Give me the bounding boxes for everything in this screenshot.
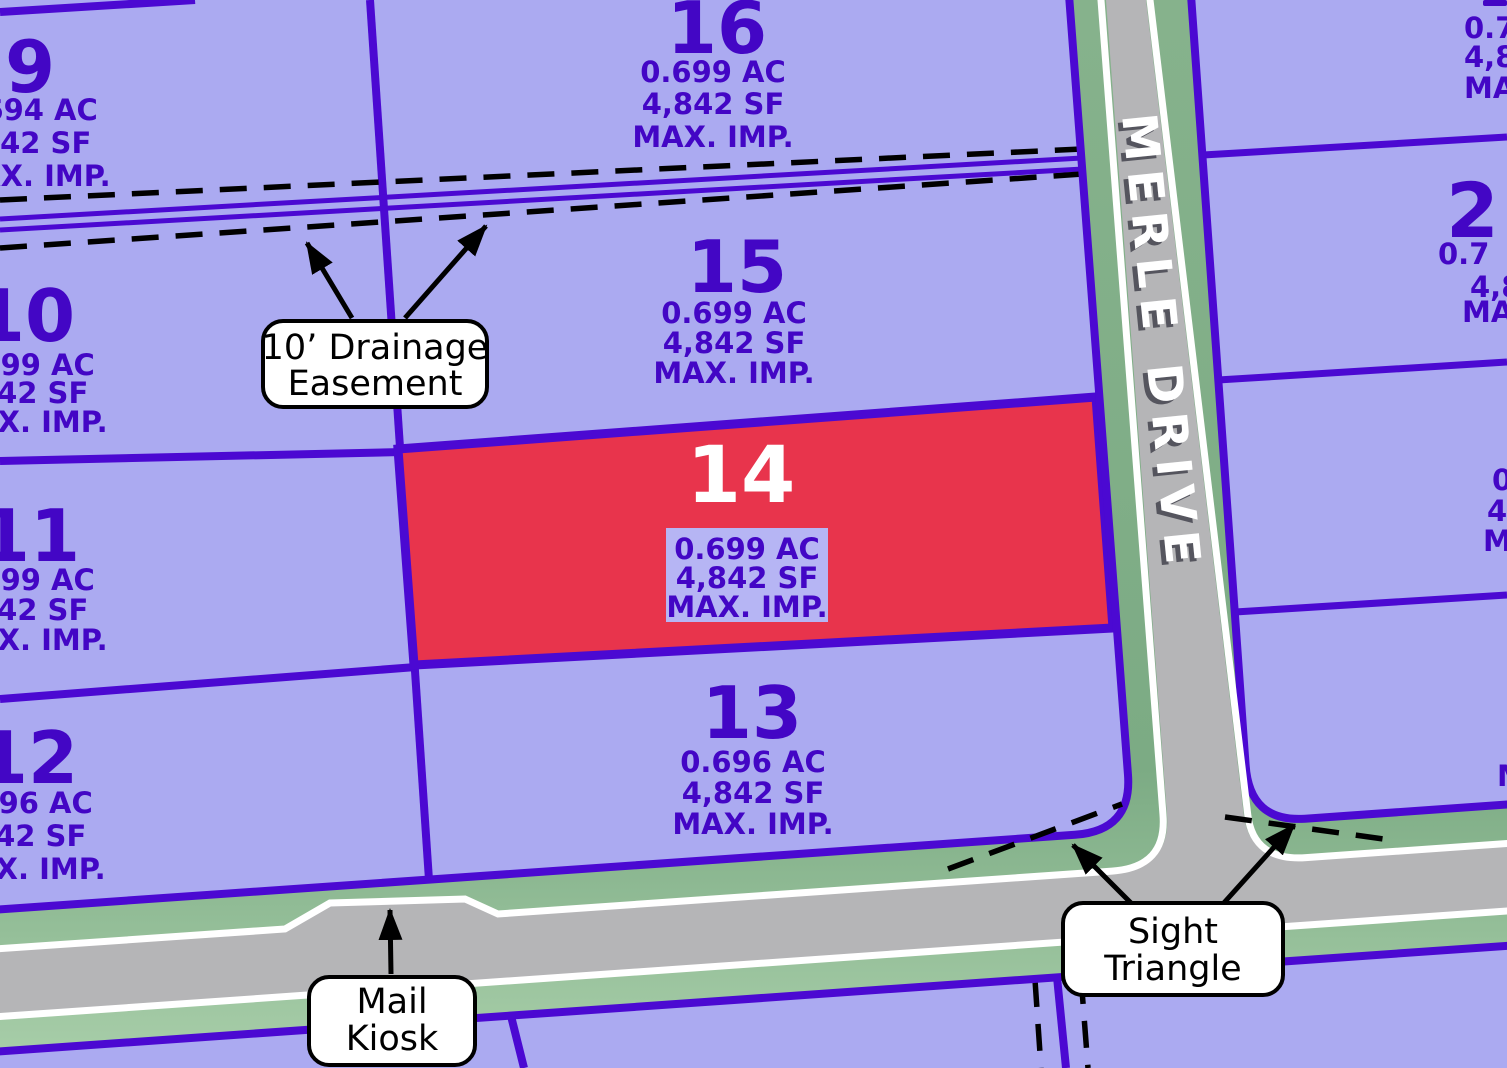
partial-lr-sqft: 4, xyxy=(1487,494,1507,528)
lot-16-sqft: 4,842 SF xyxy=(642,87,785,121)
lot-11-sqft: 4,842 SF xyxy=(0,593,88,627)
sight-triangle-callout-line2: Triangle xyxy=(1103,949,1241,989)
lot-10-number: 10 xyxy=(0,274,75,358)
lot-15-max-imp: MAX. IMP. xyxy=(653,356,814,390)
lot-14-max-imp: MAX. IMP. xyxy=(666,590,827,624)
lot-12-sqft: 4,842 SF xyxy=(0,819,86,853)
lot-13-acres: 0.696 AC xyxy=(680,745,826,779)
lot-9-max-imp: MAX. IMP. xyxy=(0,159,111,193)
callout-drainage-easement: 10’ Drainage Easement xyxy=(262,321,489,407)
sight-triangle-callout-line1: Sight xyxy=(1128,912,1218,952)
lot-14-number: 14 xyxy=(687,431,796,521)
partial-number-fragment xyxy=(1483,0,1507,6)
partial-mr-max-imp: MAX xyxy=(1462,295,1507,329)
lot-15-acres: 0.699 AC xyxy=(661,296,807,330)
partial-br-text: M xyxy=(1497,759,1507,793)
partial-lr-acres: 0. xyxy=(1492,463,1507,497)
lot-9-acres: 0.694 AC xyxy=(0,93,98,127)
mail-kiosk-callout-line2: Kiosk xyxy=(346,1019,439,1059)
lot-partial-top-right[interactable]: 0.7 4,8 MAX xyxy=(1464,0,1507,105)
partial-tr-sqft: 4,8 xyxy=(1464,40,1507,74)
mail-kiosk-arrow xyxy=(390,910,391,974)
partial-mr-acres: 0.7 xyxy=(1438,237,1489,271)
callout-sight-triangle: Sight Triangle xyxy=(1063,903,1283,995)
lot-12-max-imp: MAX. IMP. xyxy=(0,852,106,886)
lot-15-sqft: 4,842 SF xyxy=(663,326,806,360)
lot-13-sqft: 4,842 SF xyxy=(682,776,825,810)
lot-13-max-imp: MAX. IMP. xyxy=(672,807,833,841)
plat-map: MERLE DRIVE MERLE DRIVE 9 0.694 AC 4,842… xyxy=(0,0,1507,1068)
partial-tr-max-imp: MAX xyxy=(1464,71,1507,105)
partial-lr-max-imp: MA xyxy=(1483,524,1507,558)
lot-16-max-imp: MAX. IMP. xyxy=(632,120,793,154)
lot-11-max-imp: MAX. IMP. xyxy=(0,623,108,657)
lot-13-number: 13 xyxy=(702,671,802,755)
mail-kiosk-callout-line1: Mail xyxy=(356,982,427,1022)
drainage-callout-line2: Easement xyxy=(288,364,463,404)
lot-16-acres: 0.699 AC xyxy=(640,55,786,89)
lot-11-acres: 0.699 AC xyxy=(0,563,95,597)
lot-9-sqft: 4,842 SF xyxy=(0,126,91,160)
lot-partial-bottom-right[interactable]: M xyxy=(1497,759,1507,793)
drainage-callout-line1: 10’ Drainage xyxy=(262,328,489,368)
callout-mail-kiosk: Mail Kiosk xyxy=(309,977,475,1065)
lot-12-acres: 0.696 AC xyxy=(0,786,93,820)
lot-10-max-imp: MAX. IMP. xyxy=(0,405,108,439)
